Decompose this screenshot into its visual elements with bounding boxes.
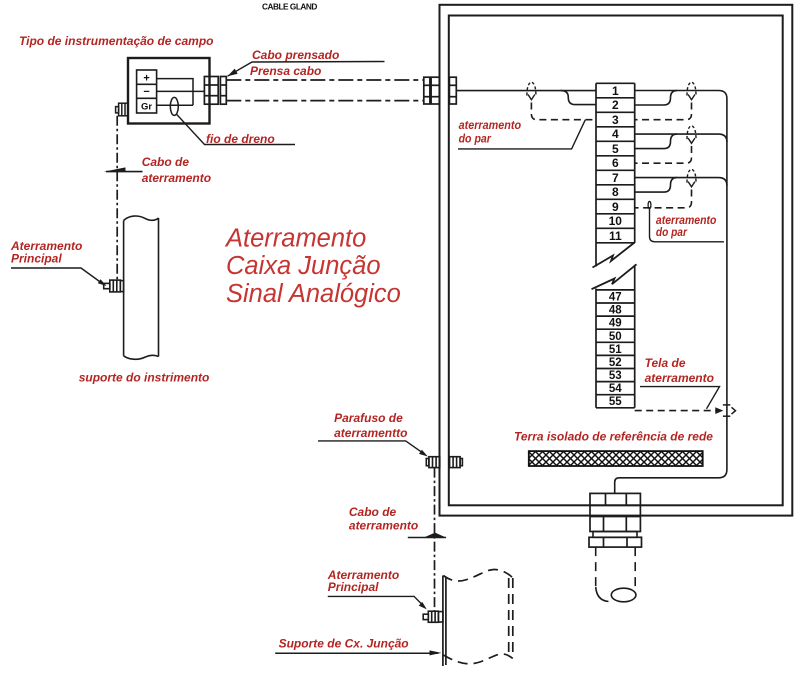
svg-text:Cabo de: Cabo de xyxy=(142,155,190,169)
svg-text:2: 2 xyxy=(612,98,619,112)
svg-text:aterramento: aterramento xyxy=(645,371,714,385)
svg-text:Caixa Junção: Caixa Junção xyxy=(226,252,381,280)
svg-text:3: 3 xyxy=(612,113,619,127)
svg-text:+: + xyxy=(143,73,149,85)
svg-text:do par: do par xyxy=(656,225,688,239)
svg-text:9: 9 xyxy=(612,200,619,214)
svg-text:47: 47 xyxy=(609,291,622,303)
svg-text:Principal: Principal xyxy=(11,252,62,266)
svg-text:Sinal Analógico: Sinal Analógico xyxy=(226,280,401,308)
svg-text:Prensa cabo: Prensa cabo xyxy=(250,64,321,78)
svg-text:Cabo prensado: Cabo prensado xyxy=(252,48,339,62)
svg-text:1: 1 xyxy=(612,84,619,98)
svg-text:8: 8 xyxy=(612,185,619,199)
svg-text:Terra isolado de referência de: Terra isolado de referência de rede xyxy=(514,430,713,444)
svg-text:51: 51 xyxy=(609,344,622,356)
svg-text:54: 54 xyxy=(609,383,622,395)
svg-text:10: 10 xyxy=(609,214,623,228)
svg-text:aterramentto: aterramentto xyxy=(334,426,407,440)
svg-text:Cabo de: Cabo de xyxy=(349,505,397,519)
svg-text:53: 53 xyxy=(609,370,622,382)
svg-text:7: 7 xyxy=(612,171,619,185)
svg-text:aterramento: aterramento xyxy=(459,118,521,132)
svg-text:aterramento: aterramento xyxy=(349,519,418,533)
svg-text:Aterramento: Aterramento xyxy=(224,225,366,253)
svg-text:Gr: Gr xyxy=(141,102,152,113)
svg-text:suporte do instrimento: suporte do instrimento xyxy=(79,371,210,385)
svg-text:5: 5 xyxy=(612,142,619,156)
svg-text:55: 55 xyxy=(609,396,622,408)
svg-text:52: 52 xyxy=(609,357,622,369)
svg-text:Tipo de instrumentação de camp: Tipo de instrumentação de campo xyxy=(19,34,213,48)
svg-text:Tela de: Tela de xyxy=(645,356,686,370)
svg-text:Parafuso de: Parafuso de xyxy=(334,411,403,425)
svg-text:6: 6 xyxy=(612,156,619,170)
svg-text:49: 49 xyxy=(609,318,622,330)
svg-text:do par: do par xyxy=(459,132,492,146)
svg-text:4: 4 xyxy=(612,127,619,141)
svg-text:CABLE GLAND: CABLE GLAND xyxy=(262,2,317,12)
svg-text:48: 48 xyxy=(609,305,622,317)
svg-text:Suporte de Cx. Junção: Suporte de Cx. Junção xyxy=(279,637,409,651)
svg-text:Principal: Principal xyxy=(328,580,379,594)
svg-text:aterramento: aterramento xyxy=(142,171,211,185)
svg-text:11: 11 xyxy=(609,229,622,243)
svg-text:−: − xyxy=(143,86,149,98)
svg-text:50: 50 xyxy=(609,331,622,343)
